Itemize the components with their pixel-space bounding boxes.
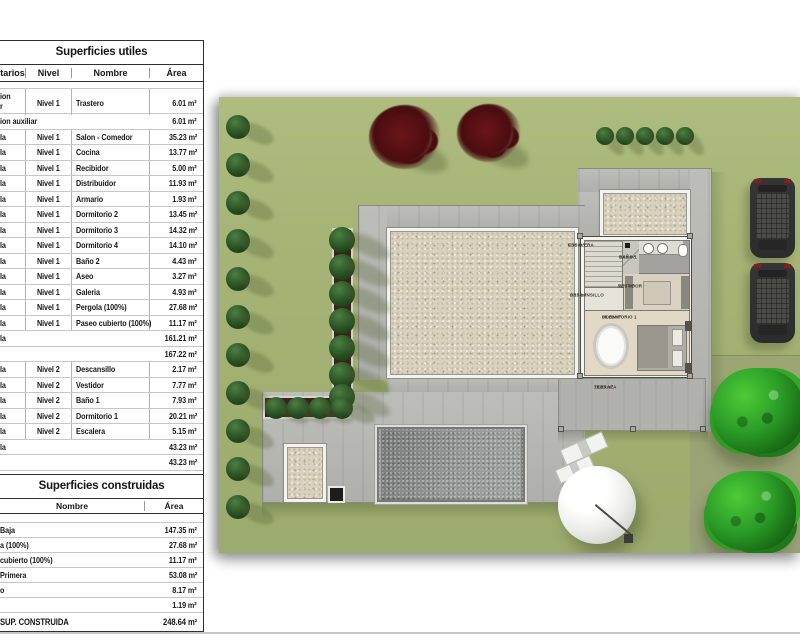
bush-icon — [596, 127, 614, 145]
cell-nombre: Aseo — [72, 269, 150, 284]
room-descansillo — [585, 288, 623, 311]
cell-nombre: Baño 1 — [72, 393, 150, 408]
table-row: laNivel 1Aseo3.27 m² — [0, 269, 203, 285]
cell-area: 13.77 m² — [150, 145, 203, 160]
cell-area: 11.17 m² — [145, 553, 203, 567]
header-area: Área — [145, 501, 203, 511]
cell-nivel: Nivel 2 — [26, 424, 72, 439]
hedge-bush-icon — [329, 335, 355, 361]
cell-area: 53.08 m² — [145, 568, 203, 582]
table-title-construidas: Superficies construidas — [0, 474, 204, 499]
superficies-utiles-table: Superficies utiles tarios Nivel Nombre Á… — [0, 40, 204, 490]
cell-nivel: Nivel 1 — [26, 254, 72, 269]
column-post — [687, 233, 693, 239]
cell-owner: la — [0, 300, 26, 315]
cell-nombre: Dormitorio 3 — [72, 223, 150, 238]
hedge-bush-icon — [329, 254, 355, 280]
table-row: laNivel 2Descansillo2.17 m² — [0, 362, 203, 378]
building-shadow — [262, 503, 592, 519]
taillight-icon — [784, 264, 791, 268]
cell-owner: la — [0, 254, 26, 269]
cell-nombre: o — [0, 583, 145, 597]
cell-owner: la — [0, 285, 26, 300]
fence-line — [262, 502, 585, 503]
cell-nombre: Pergola (100%) — [72, 300, 150, 315]
fence-line — [358, 205, 585, 206]
bush-icon — [226, 267, 250, 291]
dome-foot — [624, 534, 633, 543]
bush-icon — [676, 127, 694, 145]
bathtub-icon — [593, 323, 629, 369]
spacer-row — [0, 82, 203, 89]
cell-area: 7.77 m² — [150, 378, 203, 393]
hedge-bush-icon — [329, 308, 355, 334]
cell-area: 7.93 m² — [150, 393, 203, 408]
cell-nivel: Nivel 1 — [26, 161, 72, 176]
cell-nombre: a (100%) — [0, 538, 145, 552]
bush-icon — [226, 343, 250, 367]
terrace-deck — [558, 378, 706, 431]
cell-owner: la — [0, 161, 26, 176]
bush-icon — [226, 153, 250, 177]
bush-icon — [616, 127, 634, 145]
car — [750, 263, 795, 343]
cell-nivel: Nivel 1 — [26, 207, 72, 222]
table-header-construidas: Nombre Área — [0, 499, 203, 514]
cell-nombre: SUP. CONSTRUIDA — [0, 613, 145, 631]
table-row: a (100%)27.68 m² — [0, 538, 203, 553]
cell-nombre: Dormitorio 4 — [72, 238, 150, 253]
table-row: laNivel 1Cocina13.77 m² — [0, 145, 203, 161]
bush-icon — [226, 419, 250, 443]
cell-area: 20.21 m² — [150, 409, 203, 424]
car-rear-window — [758, 270, 787, 277]
pillow-icon — [672, 350, 683, 367]
cell-owner: la — [0, 424, 26, 439]
bush-icon — [226, 229, 250, 253]
cell-area: 11.93 m² — [150, 176, 203, 191]
cell-nombre: Primera — [0, 568, 145, 582]
red-tree-icon — [457, 104, 521, 162]
cell-owner: la — [0, 316, 26, 331]
cell-label: la — [0, 440, 150, 455]
cell-area: 35.23 m² — [150, 130, 203, 145]
cell-area: 8.17 m² — [145, 583, 203, 597]
table-row: laNivel 2Escalera5.15 m² — [0, 424, 203, 440]
table-row: laNivel 2Vestidor7.77 m² — [0, 378, 203, 394]
column-post — [577, 373, 583, 379]
spacer-row — [0, 514, 203, 523]
column-post — [577, 233, 583, 239]
header-area: Área — [150, 68, 203, 78]
superficies-construidas-table: Superficies construidas Nombre Área Baja… — [0, 474, 204, 632]
cell-area: 161.21 m² — [150, 331, 203, 346]
cell-owner: la — [0, 192, 26, 207]
cell-nivel: Nivel 1 — [26, 130, 72, 145]
cell-area: 27.68 m² — [150, 300, 203, 315]
cell-area: 2.17 m² — [150, 362, 203, 377]
sink-icon — [643, 243, 654, 254]
flat-roof-upper — [600, 190, 690, 238]
cell-area: 5.00 m² — [150, 161, 203, 176]
car-windshield — [758, 325, 787, 335]
cell-nivel: Nivel 1 — [26, 285, 72, 300]
bed-blanket — [638, 326, 668, 368]
cell-area: 27.68 m² — [145, 538, 203, 552]
cell-nombre: cubierto (100%) — [0, 553, 145, 567]
cell-nivel: Nivel 1 — [26, 89, 72, 115]
table-row: ion auxiliar6.01 m² — [0, 114, 203, 130]
table-row: laNivel 1Galeria4.93 m² — [0, 285, 203, 301]
cell-area: 6.01 m² — [150, 114, 203, 129]
shower-head-icon — [625, 243, 630, 248]
column-post — [700, 426, 706, 432]
swimming-pool — [379, 429, 523, 500]
taillight-icon — [784, 179, 791, 183]
table-row: laNivel 1Recibidor5.00 m² — [0, 161, 203, 177]
table-row: laNivel 1Distribuidor11.93 m² — [0, 176, 203, 192]
table-row: laNivel 1Baño 24.43 m² — [0, 254, 203, 270]
toilet-icon — [678, 244, 688, 257]
cell-owner: la — [0, 362, 26, 377]
green-tree-icon — [706, 471, 796, 551]
cell-area: 1.19 m² — [145, 598, 203, 612]
paving-mid — [387, 376, 585, 392]
cell-area: 4.43 m² — [150, 254, 203, 269]
table-row: laNivel 1Pergola (100%)27.68 m² — [0, 300, 203, 316]
bush-icon — [226, 457, 250, 481]
table-body-utiles: ionrNivel 1Trastero6.01 m²ion auxiliar6.… — [0, 89, 203, 489]
utility-box — [328, 486, 345, 503]
pillow-icon — [672, 329, 683, 346]
paving-top — [358, 205, 585, 230]
cell-nombre: Descansillo — [72, 362, 150, 377]
cell-nivel: Nivel 1 — [26, 145, 72, 160]
fence-line — [578, 168, 712, 169]
car-roof — [756, 278, 789, 324]
cell-nivel: Nivel 1 — [26, 269, 72, 284]
hedge-bush-icon — [329, 281, 355, 307]
bush-icon — [226, 305, 250, 329]
table-row: laNivel 1Dormitorio 213.45 m² — [0, 207, 203, 223]
header-nivel: Nivel — [26, 68, 72, 78]
hedge-bush-icon — [265, 397, 287, 419]
taillight-icon — [754, 179, 761, 183]
cell-label: la — [0, 331, 150, 346]
cell-owner: la — [0, 238, 26, 253]
nightstand-icon — [685, 363, 691, 373]
cell-owner: ionr — [0, 89, 26, 115]
dome-tent — [558, 466, 636, 544]
fence-line — [711, 168, 712, 432]
cell-label: ion auxiliar — [0, 114, 150, 129]
dressing-table — [643, 281, 671, 305]
table-title-utiles: Superficies utiles — [0, 40, 204, 65]
bed-icon — [637, 325, 687, 371]
table-header-utiles: tarios Nivel Nombre Área — [0, 65, 203, 82]
flat-roof-main — [387, 228, 578, 378]
red-tree-icon — [369, 105, 441, 169]
cell-nombre: Escalera — [72, 424, 150, 439]
cell-nivel: Nivel 1 — [26, 176, 72, 191]
cell-owner: la — [0, 130, 26, 145]
shed-roof — [284, 444, 326, 502]
cell-nivel: Nivel 2 — [26, 362, 72, 377]
column-post — [630, 426, 636, 432]
cell-nombre: Distribuidor — [72, 176, 150, 191]
cell-area: 14.10 m² — [150, 238, 203, 253]
cell-nombre: Recibidor — [72, 161, 150, 176]
table-row: laNivel 1Dormitorio 414.10 m² — [0, 238, 203, 254]
room-escalera — [585, 241, 623, 288]
cell-nivel: Nivel 2 — [26, 378, 72, 393]
table-row: Primera53.08 m² — [0, 568, 203, 583]
dome-pole — [595, 504, 632, 535]
cell-nivel: Nivel 1 — [26, 316, 72, 331]
table-row: laNivel 2Baño 17.93 m² — [0, 393, 203, 409]
cell-area: 13.45 m² — [150, 207, 203, 222]
cell-nombre: Dormitorio 2 — [72, 207, 150, 222]
cell-area: 167.22 m² — [150, 347, 203, 362]
cell-owner: la — [0, 207, 26, 222]
column-post — [558, 426, 564, 432]
table-row: SUP. CONSTRUIDA248.64 m² — [0, 613, 203, 631]
cell-owner: la — [0, 269, 26, 284]
cell-area: 43.23 m² — [150, 455, 203, 470]
cell-area: 6.01 m² — [150, 89, 203, 115]
car-roof — [756, 193, 789, 239]
cell-owner: la — [0, 393, 26, 408]
table-row: ionrNivel 1Trastero6.01 m² — [0, 89, 203, 114]
wardrobe-left — [625, 276, 633, 309]
cell-nombre: Paseo cubierto (100%) — [72, 316, 150, 331]
table-row: la43.23 m² — [0, 440, 203, 456]
table-row: 1.19 m² — [0, 598, 203, 613]
bottom-divider — [0, 632, 800, 634]
cell-area: 14.32 m² — [150, 223, 203, 238]
hedge-bush-icon — [331, 397, 353, 419]
cell-area: 5.15 m² — [150, 424, 203, 439]
cell-area: 4.93 m² — [150, 285, 203, 300]
cell-nombre: Cocina — [72, 145, 150, 160]
cell-label — [0, 455, 150, 470]
cell-nivel: Nivel 2 — [26, 409, 72, 424]
car-rear-window — [758, 185, 787, 192]
cell-area: 3.27 m² — [150, 269, 203, 284]
cell-nombre: Baño 2 — [72, 254, 150, 269]
table-row: laNivel 1Dormitorio 314.32 m² — [0, 223, 203, 239]
table-row: laNivel 1Armario1.93 m² — [0, 192, 203, 208]
car — [750, 178, 795, 258]
cell-label — [0, 347, 150, 362]
table-row: cubierto (100%)11.17 m² — [0, 553, 203, 568]
car-windshield — [758, 240, 787, 250]
cell-nombre: Armario — [72, 192, 150, 207]
cell-nombre: Baja — [0, 523, 145, 537]
bush-icon — [656, 127, 674, 145]
cell-nombre: Salon - Comedor — [72, 130, 150, 145]
cell-nombre: Dormitorio 1 — [72, 409, 150, 424]
header-nombre: Nombre — [0, 501, 145, 511]
green-tree-icon — [712, 368, 800, 454]
bush-icon — [226, 495, 250, 519]
cell-area: 11.17 m² — [150, 316, 203, 331]
table-row: 43.23 m² — [0, 455, 203, 471]
sink-icon — [657, 243, 668, 254]
table-row: laNivel 2Dormitorio 120.21 m² — [0, 409, 203, 425]
cell-nivel: Nivel 1 — [26, 238, 72, 253]
table-row: laNivel 1Paseo cubierto (100%)11.17 m² — [0, 316, 203, 332]
table-body-construidas: Baja147.35 m²a (100%)27.68 m²cubierto (1… — [0, 523, 203, 631]
column-post — [687, 373, 693, 379]
header-owner: tarios — [0, 68, 26, 78]
cell-nombre: Trastero — [72, 89, 150, 115]
header-nombre: Nombre — [72, 68, 150, 78]
cell-nombre: Galeria — [72, 285, 150, 300]
cell-owner: la — [0, 409, 26, 424]
cell-owner: la — [0, 223, 26, 238]
cell-area: 43.23 m² — [150, 440, 203, 455]
cell-nivel: Nivel 1 — [26, 300, 72, 315]
table-row: Baja147.35 m² — [0, 523, 203, 538]
cell-owner: la — [0, 176, 26, 191]
cell-nivel: Nivel 2 — [26, 393, 72, 408]
wardrobe-right — [681, 276, 689, 309]
cell-owner: la — [0, 145, 26, 160]
hedge-bush-icon — [287, 397, 309, 419]
hedge-bush-icon — [329, 227, 355, 253]
cell-nivel: Nivel 1 — [26, 223, 72, 238]
table-row: 167.22 m² — [0, 347, 203, 363]
cell-owner: la — [0, 378, 26, 393]
cell-area: 147.35 m² — [145, 523, 203, 537]
cell-nivel: Nivel 1 — [26, 192, 72, 207]
cell-nombre — [0, 598, 145, 612]
bush-icon — [636, 127, 654, 145]
bush-icon — [226, 191, 250, 215]
cell-area: 1.93 m² — [150, 192, 203, 207]
table-row: o8.17 m² — [0, 583, 203, 598]
bush-icon — [226, 115, 250, 139]
cell-area: 248.64 m² — [145, 613, 203, 631]
table-row: laNivel 1Salon - Comedor35.23 m² — [0, 130, 203, 146]
bush-icon — [226, 381, 250, 405]
site-plan: ESCALERA5.15 m² BAÑO 17.93 m² VESTIDOR7.… — [219, 97, 800, 553]
nightstand-icon — [685, 321, 691, 331]
cell-nombre: Vestidor — [72, 378, 150, 393]
table-row: la161.21 m² — [0, 331, 203, 347]
taillight-icon — [754, 264, 761, 268]
hedge-bush-icon — [309, 397, 331, 419]
plan-document: Superficies utiles tarios Nivel Nombre Á… — [0, 0, 800, 640]
